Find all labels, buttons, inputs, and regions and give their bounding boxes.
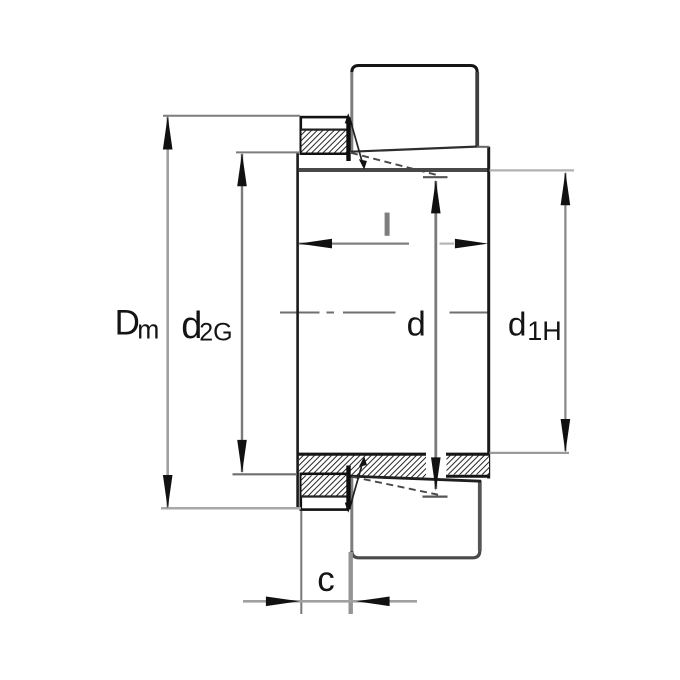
svg-text:d: d [407, 306, 426, 344]
svg-text:c: c [317, 560, 335, 599]
svg-text:d: d [508, 307, 527, 344]
svg-text:1H: 1H [527, 316, 562, 346]
svg-text:2G: 2G [199, 318, 232, 346]
svg-text:D: D [115, 303, 140, 342]
svg-text:m: m [137, 315, 159, 345]
